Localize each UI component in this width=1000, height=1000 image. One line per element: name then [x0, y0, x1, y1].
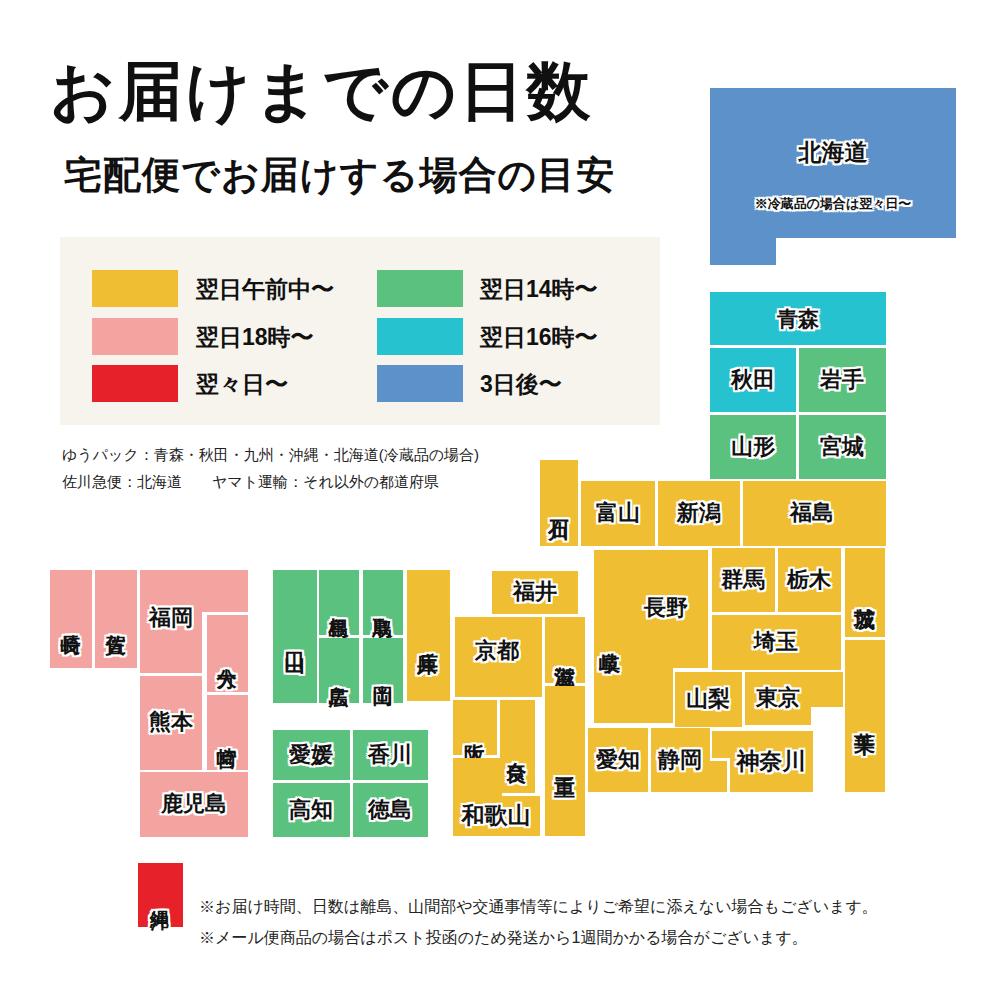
prefecture-miyazaki-shape — [207, 695, 248, 770]
prefecture-tokyo-shape — [811, 672, 843, 707]
prefecture-ehime-label: 愛媛 — [289, 744, 333, 766]
prefecture-tottori-shape — [363, 570, 403, 635]
prefecture-nara-shape — [500, 700, 535, 793]
prefecture-yamaguchi-shape — [273, 570, 317, 703]
prefecture-saitama-label: 埼玉 — [754, 631, 798, 653]
prefecture-yamanashi-label: 山梨 — [686, 688, 730, 710]
prefecture-niigata-label: 新潟 — [677, 502, 721, 524]
prefecture-shizuoka-label: 静岡 — [658, 749, 702, 771]
prefecture-kumamoto-label: 熊本 — [149, 711, 193, 733]
prefecture-akita-label: 秋田 — [731, 369, 775, 391]
prefecture-tokushima-label: 徳島 — [368, 799, 412, 821]
prefecture-ishikawa-shape — [540, 460, 578, 546]
prefecture-gunma-label: 群馬 — [721, 569, 765, 591]
prefecture-miyagi-label: 宮城 — [820, 436, 864, 458]
footer-note-line-2: ※メール便商品の場合はポスト投函のため発送から1週間かかる場合がございます。 — [199, 928, 808, 949]
prefecture-iwate-label: 岩手 — [820, 369, 864, 391]
prefecture-shiga-shape — [545, 617, 585, 683]
prefecture-aomori-label: 青森 — [777, 308, 819, 329]
prefecture-tochigi-label: 栃木 — [787, 569, 831, 591]
prefecture-kagawa-label: 香川 — [368, 744, 412, 766]
prefecture-nagano-shape — [625, 668, 673, 723]
prefecture-hokkaido-note: ※冷蔵品の場合は翌々日〜 — [755, 197, 912, 210]
prefecture-aichi-label: 愛知 — [596, 749, 640, 771]
footer-note-line-1: ※お届け時間、日数は離島、山間部や交通事情等によりご希望に添えない場合もございま… — [199, 897, 878, 918]
prefecture-chiba-shape — [845, 640, 885, 792]
prefecture-hokkaido-shape — [710, 238, 776, 265]
prefecture-okayama-shape — [363, 638, 403, 703]
prefecture-tokyo-label: 東京 — [756, 687, 800, 709]
prefecture-hyogo-shape — [407, 570, 450, 701]
prefecture-mie-shape — [545, 686, 585, 836]
prefecture-fukushima-label: 福島 — [790, 502, 834, 524]
prefecture-oita-shape — [207, 615, 248, 692]
prefecture-osaka-shape — [453, 700, 497, 755]
prefecture-ibaraki-shape — [845, 548, 885, 637]
prefecture-kochi-label: 高知 — [289, 799, 333, 821]
prefecture-toyama-label: 富山 — [596, 502, 640, 524]
prefecture-kyoto-label: 京都 — [475, 640, 519, 662]
prefecture-gifu-shape — [594, 550, 626, 723]
prefecture-wakayama-label: 和歌山 — [462, 804, 531, 827]
prefecture-hiroshima-shape — [319, 638, 359, 703]
prefecture-hokkaido-label: 北海道 — [799, 141, 868, 164]
prefecture-shizuoka-shape — [710, 761, 727, 792]
prefecture-yamagata-label: 山形 — [731, 436, 775, 458]
prefecture-shimane-shape — [319, 570, 359, 635]
japan-map: 北海道※冷蔵品の場合は翌々日〜青森秋田岩手山形宮城石川富山新潟福島福井京都滋賀岐… — [0, 0, 1000, 1000]
prefecture-saga-shape — [95, 570, 137, 668]
prefecture-nagasaki-shape — [50, 570, 92, 668]
prefecture-kanagawa-label: 神奈川 — [737, 750, 806, 773]
prefecture-nagano-label: 長野 — [644, 597, 688, 619]
delivery-days-infographic: お届けまでの日数 宅配便でお届けする場合の目安 翌日午前中〜翌日18時〜翌々日〜… — [0, 0, 1000, 1000]
prefecture-fukuoka-label: 福岡 — [149, 607, 193, 629]
prefecture-okinawa-shape — [138, 863, 183, 927]
prefecture-kagoshima-label: 鹿児島 — [161, 793, 227, 815]
prefecture-fukui-label: 福井 — [513, 581, 557, 603]
